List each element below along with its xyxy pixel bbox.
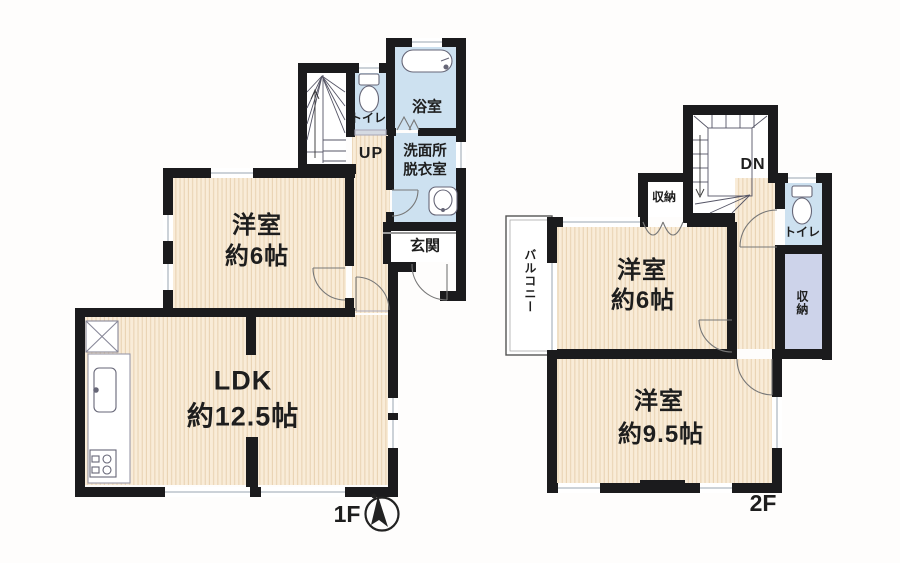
closet-right-label: 収納 [794, 290, 808, 316]
toilet-2f-label: トイレ [784, 226, 820, 240]
ldk-name: LDK [214, 365, 273, 396]
toilet-1f-label: トイレ [350, 112, 386, 126]
balcony-label: バルコニー [522, 249, 536, 314]
stairs-up-label: UP [359, 145, 383, 163]
washroom-label-line1: 洗面所 [403, 144, 447, 161]
floor-2f-tag: 2F [750, 490, 777, 516]
floor-plan-page: 洋室 約6帖 LDK 約12.5帖 浴室 洗面所 脱衣室 トイレ 玄関 UP 1… [0, 0, 900, 563]
stove-icon [90, 450, 116, 477]
crossed-box-icon [86, 321, 118, 352]
yoshitsu95-name: 洋室 [634, 388, 684, 416]
washroom-label-line2: 脱衣室 [403, 163, 447, 180]
stairs-dn-label: DN [740, 156, 765, 174]
yoshitsu6-2f-name: 洋室 [617, 257, 667, 285]
yoshitsu95-size: 約9.5帖 [618, 421, 704, 449]
floor-plan-drawing [0, 0, 900, 563]
ldk-size: 約12.5帖 [187, 401, 300, 432]
yoshitsu6-1f-name: 洋室 [232, 212, 282, 240]
bath-label: 浴室 [412, 98, 442, 115]
closet-left-label: 収納 [652, 191, 676, 205]
yoshitsu6-2f-size: 約6帖 [611, 287, 675, 315]
fixtures-2f [792, 186, 812, 224]
yoshitsu6-1f-size: 約6帖 [225, 243, 289, 271]
north-compass-icon [366, 494, 399, 531]
genkan-label: 玄関 [410, 237, 440, 254]
bathtub-icon [402, 50, 452, 72]
kitchen-sink-icon [94, 368, 116, 412]
washbasin-icon [429, 187, 457, 215]
plan-1f [75, 38, 466, 531]
floor-1f-tag: 1F [334, 501, 361, 527]
toilet-icon [792, 186, 812, 224]
toilet-icon [359, 74, 379, 112]
